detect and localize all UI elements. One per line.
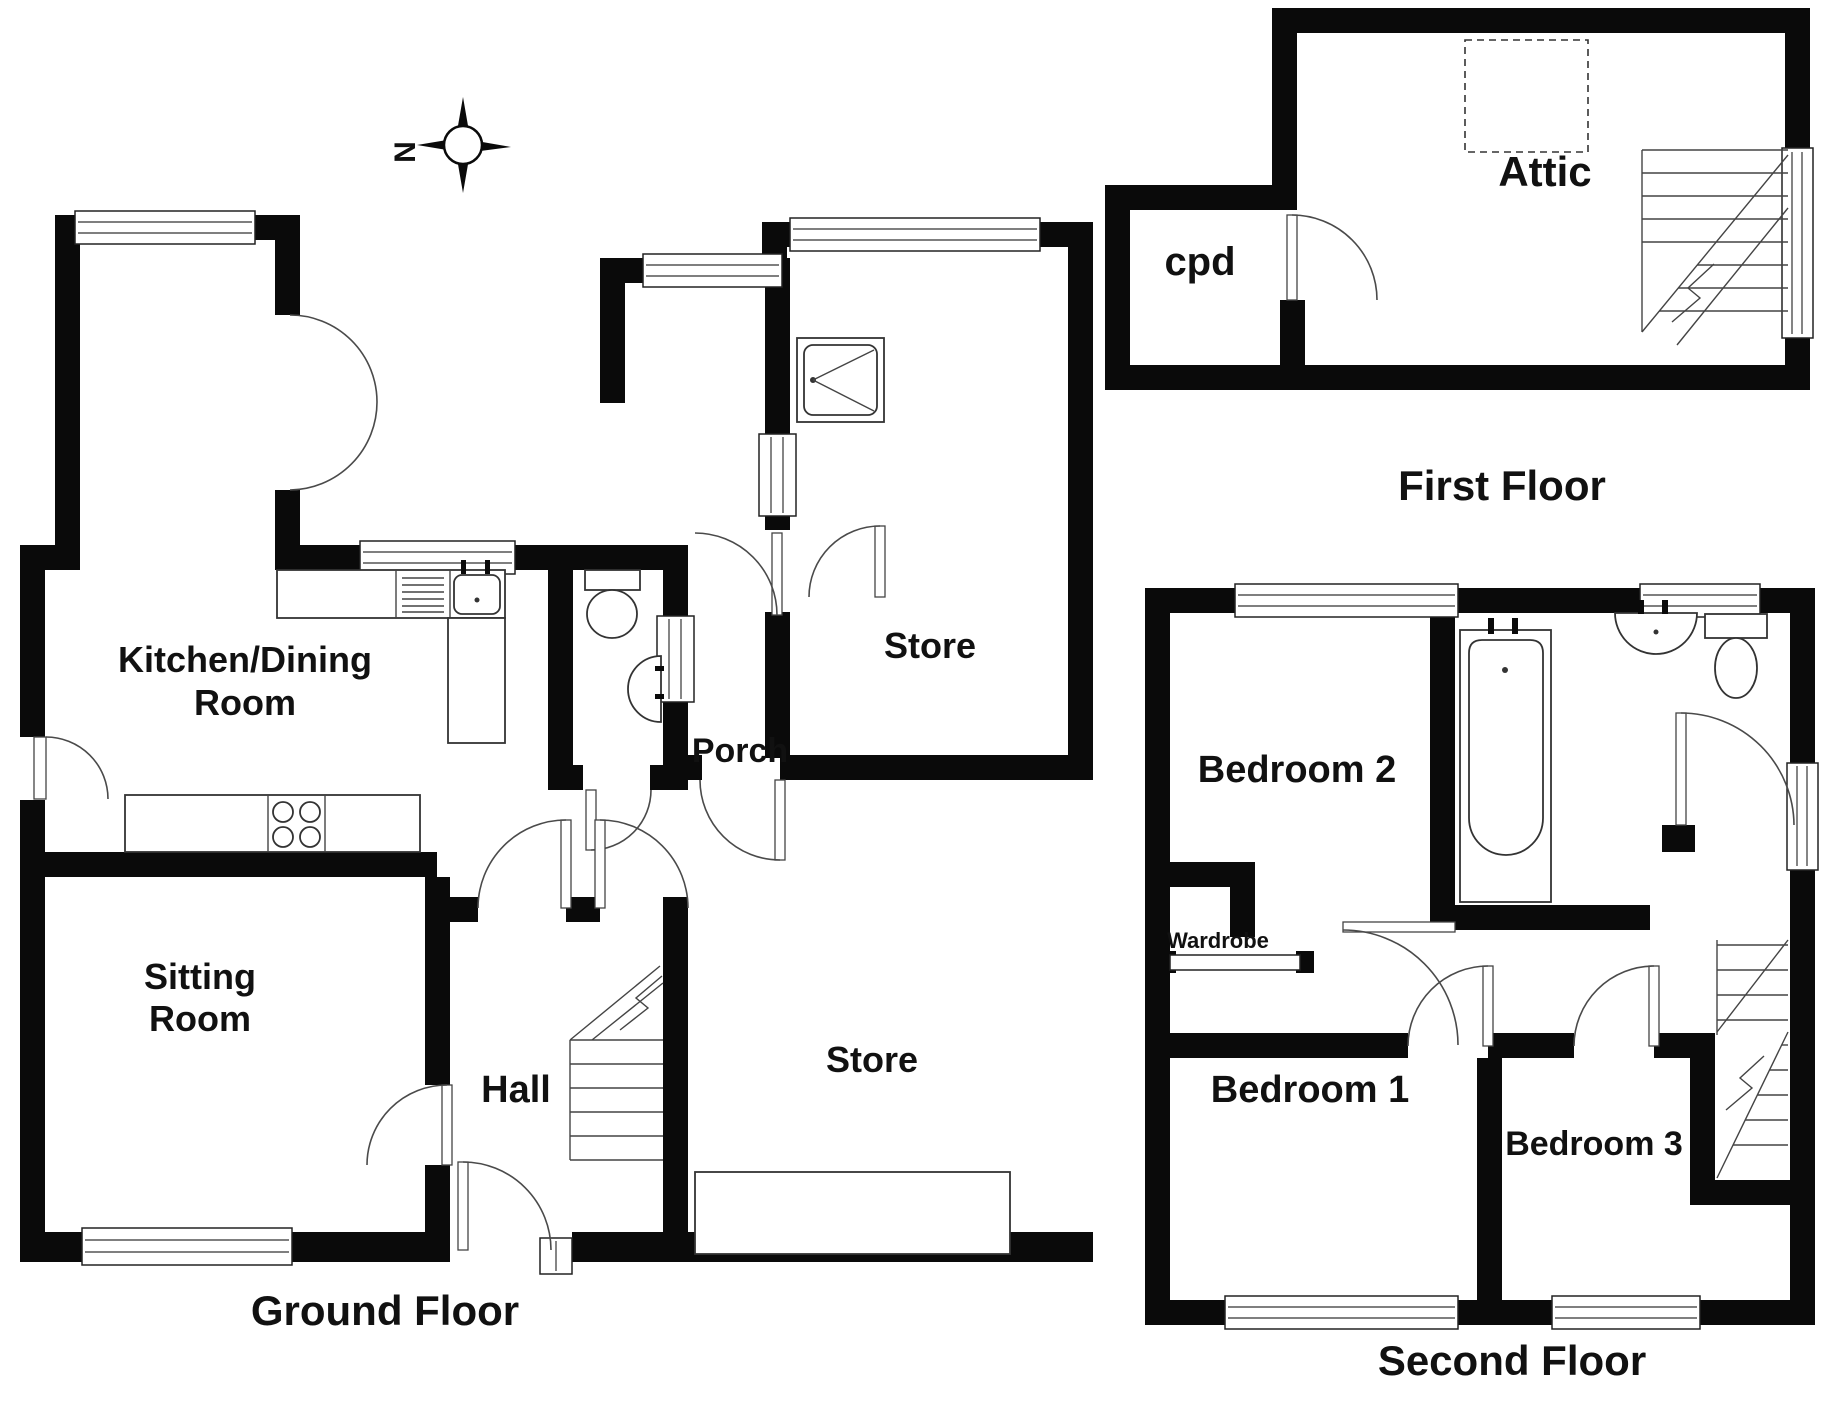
room-label-bedroom3: Bedroom 3 — [1505, 1125, 1683, 1163]
bedroom2-door — [1343, 922, 1458, 1045]
second-floor-doors — [1343, 713, 1794, 1046]
wc-basin-icon — [628, 656, 664, 722]
sidelight-window — [540, 1238, 572, 1274]
kitchen-back-door — [34, 737, 108, 799]
window — [75, 211, 255, 244]
attic-rooflight — [1465, 40, 1588, 152]
cpd-door — [1287, 215, 1377, 300]
room-label-sitting-line1: Sitting — [144, 956, 256, 997]
second-floor-stairs — [1717, 940, 1788, 1178]
window — [790, 218, 1040, 251]
compass-icon: N — [389, 97, 511, 193]
room-label-kitchen-line1: Kitchen/Dining — [118, 639, 372, 680]
counter-return — [448, 618, 505, 743]
porch-store-door — [695, 533, 782, 615]
window — [657, 616, 694, 702]
room-label-porch: Porch — [692, 732, 788, 770]
rear-store-door — [700, 780, 785, 860]
bathroom-door — [1676, 713, 1794, 825]
floor-title-second: Second Floor — [1378, 1337, 1646, 1384]
room-label-kitchen-line2: Room — [194, 682, 296, 723]
sitting-room-door — [367, 1085, 452, 1165]
window — [643, 254, 782, 287]
window — [1782, 148, 1813, 338]
floor-title-first: First Floor — [1398, 462, 1606, 509]
room-label-cpd: cpd — [1164, 240, 1235, 284]
compass-north-label: N — [389, 141, 422, 163]
window — [1225, 1296, 1458, 1329]
wardrobe-front — [1162, 951, 1314, 973]
store-bench — [695, 1172, 1010, 1254]
room-label-store-front: Store — [884, 625, 976, 666]
first-floor-plan: Attic cpd First Floor — [1105, 8, 1813, 509]
room-label-bedroom1: Bedroom 1 — [1211, 1069, 1409, 1111]
floorplan-drawing: N — [0, 0, 1825, 1407]
first-floor-walls — [1105, 8, 1810, 390]
first-floor-stairs — [1642, 150, 1788, 345]
bathroom-toilet-icon — [1705, 614, 1767, 698]
ground-floor-plan: Kitchen/Dining Room Sitting Room Hall Po… — [20, 211, 1093, 1334]
french-doors — [290, 315, 377, 490]
porch-hall-door — [595, 820, 688, 908]
window — [1235, 584, 1458, 617]
window — [1787, 763, 1818, 870]
ground-floor-doors — [34, 315, 885, 1250]
window — [82, 1228, 292, 1265]
room-label-hall: Hall — [481, 1069, 551, 1111]
window — [1640, 584, 1760, 617]
floorplan-page: N — [0, 0, 1825, 1407]
ground-floor-walls — [20, 215, 1093, 1262]
kitchen-hall-door — [478, 820, 571, 908]
second-floor-plan: Bedroom 2 Wardrobe Bedroom 1 Bedroom 3 S… — [1145, 584, 1818, 1384]
front-door — [458, 1162, 551, 1250]
window — [1552, 1296, 1700, 1329]
room-label-store-rear: Store — [826, 1039, 918, 1080]
window — [759, 434, 796, 516]
floor-title-ground: Ground Floor — [251, 1287, 519, 1334]
window — [360, 541, 515, 574]
room-label-sitting-line2: Room — [149, 998, 251, 1039]
shower-tray-icon — [797, 338, 884, 422]
room-label-attic: Attic — [1498, 148, 1591, 195]
kitchen-hob-counter — [125, 795, 420, 852]
wc-toilet-icon — [585, 570, 640, 638]
room-label-bedroom2: Bedroom 2 — [1198, 749, 1396, 791]
bath-icon — [1460, 618, 1551, 902]
hall-stairs — [570, 966, 663, 1160]
bedroom3-door — [1574, 966, 1659, 1046]
shower-door — [809, 526, 885, 597]
room-label-wardrobe: Wardrobe — [1167, 928, 1269, 953]
